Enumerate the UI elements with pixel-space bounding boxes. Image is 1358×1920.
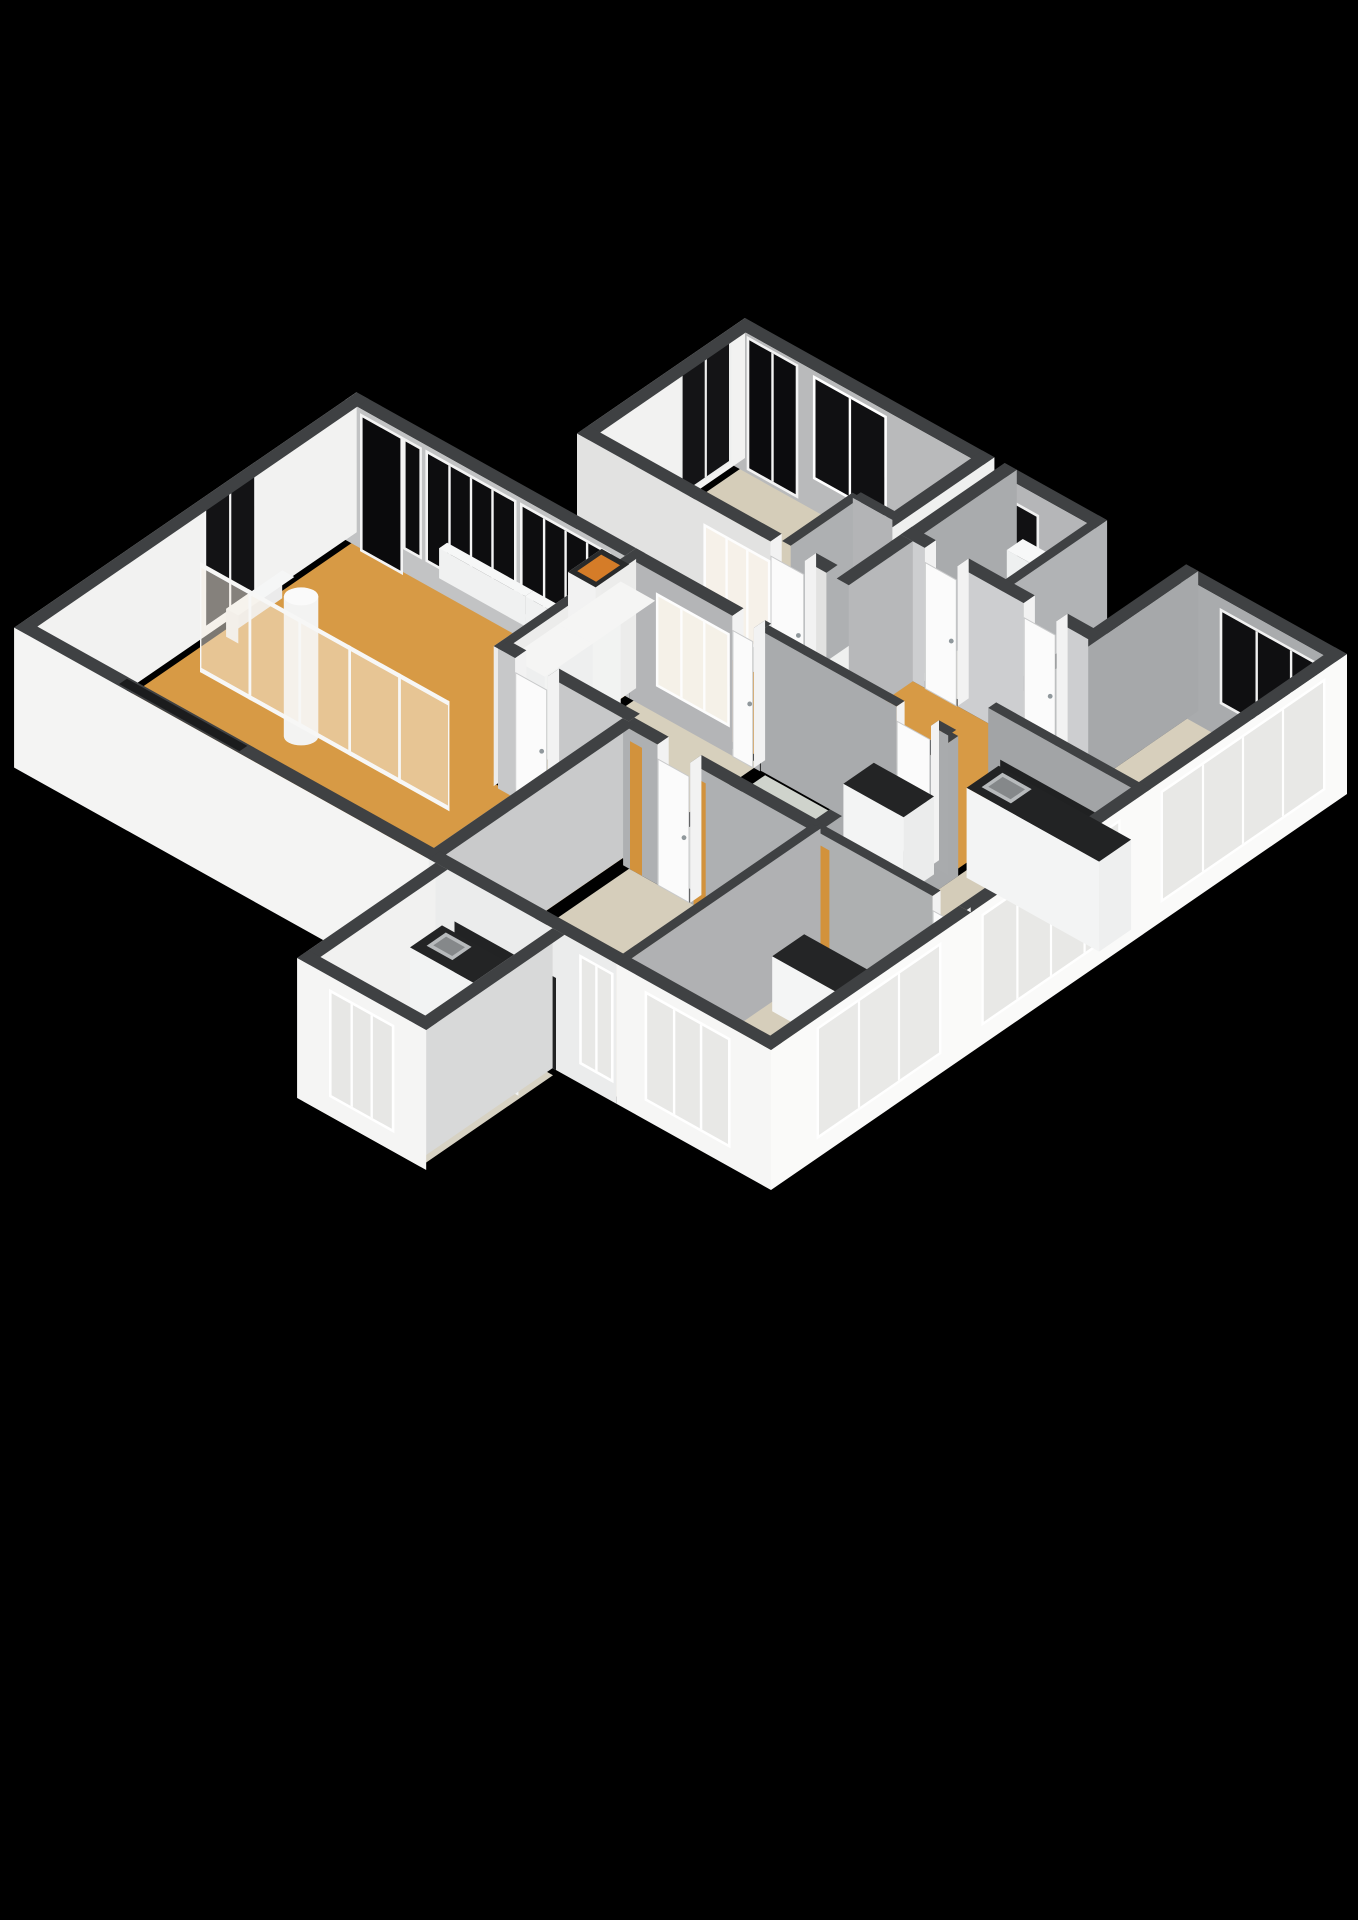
floorplan-canvas xyxy=(0,0,1358,1920)
door-corridor-study xyxy=(733,631,753,768)
floorplan-3d-render xyxy=(0,0,1358,1920)
door-toilet xyxy=(925,563,956,706)
door-bedroom-b xyxy=(658,759,689,902)
